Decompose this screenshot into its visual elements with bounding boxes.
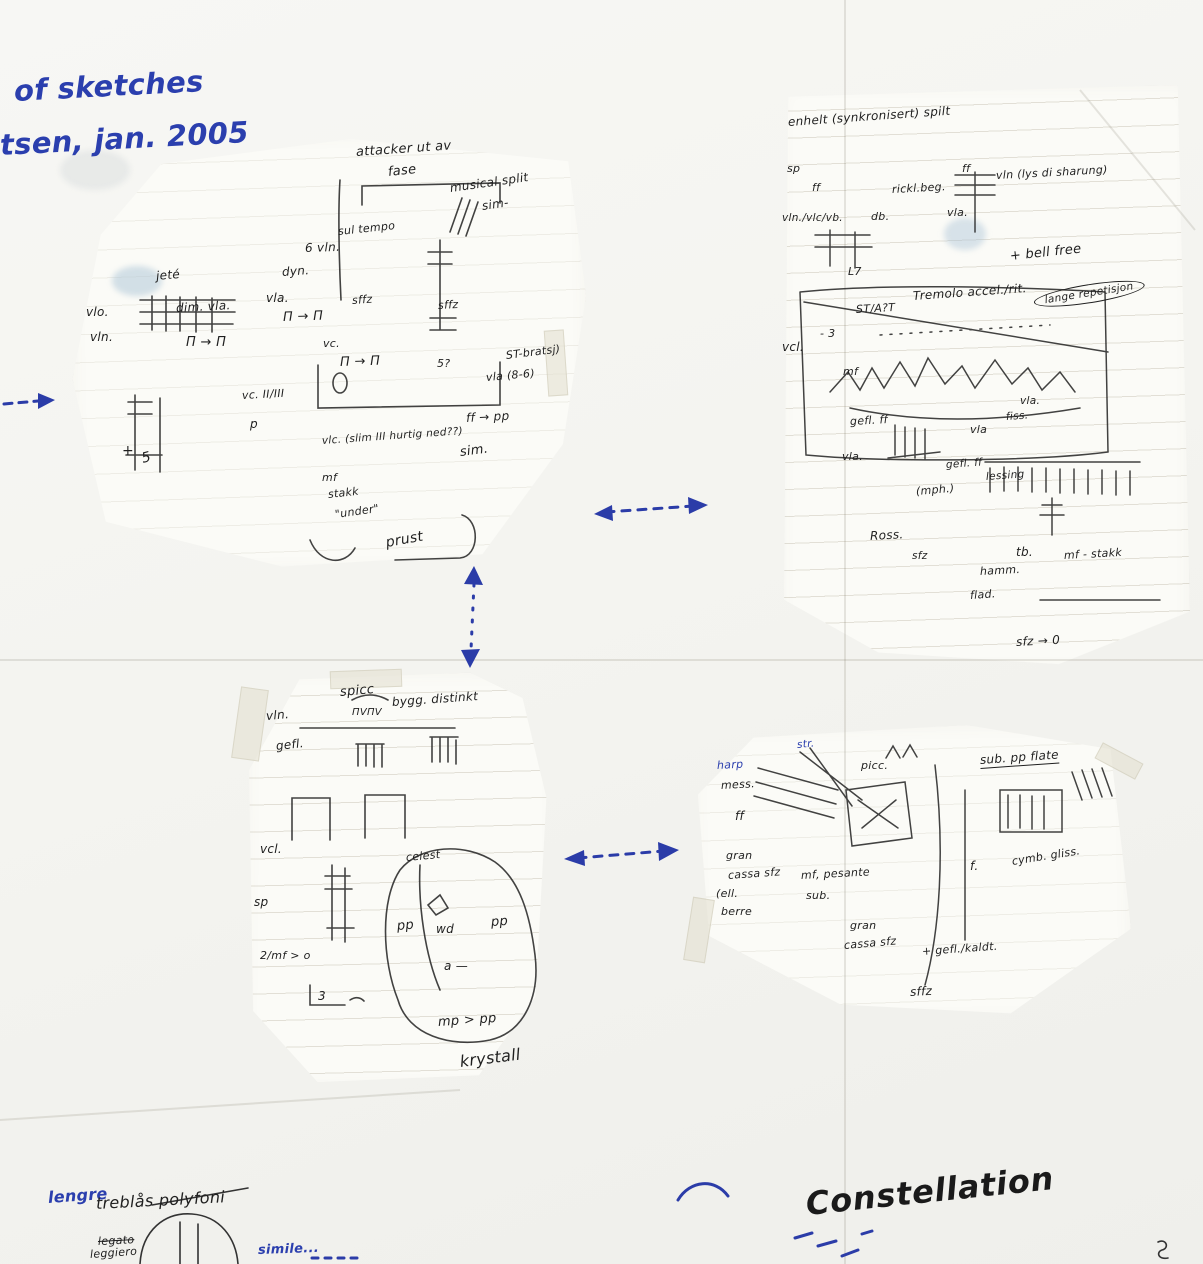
sketch-label: spicc [339, 683, 374, 700]
sketch-label: vc. [323, 338, 340, 350]
sketch-label: ff [812, 182, 820, 194]
sketch-label: 3 [318, 990, 326, 1003]
sketch-label: celest [405, 849, 440, 864]
sketch-label: sffz [910, 985, 933, 999]
sketch-label: (ell. [716, 888, 738, 900]
sketch-label: vcl. [782, 341, 804, 354]
sketch-label: sfz [912, 551, 928, 562]
sketch-label: sub. pp flate [979, 749, 1059, 769]
sketch-label: gefl. ff [946, 457, 983, 471]
sketch-label: vlo. [86, 306, 109, 319]
sketch-label: cassa sfz [728, 866, 781, 881]
sketch-label: a — [444, 960, 468, 973]
sketch-label: + gefl./kaldt. [922, 941, 998, 958]
sketch-label: vla. [1020, 396, 1040, 407]
sketch-label: ΠVΠV [352, 708, 382, 719]
sketch-label: Π → Π [186, 336, 226, 350]
sketch-label: berre [721, 906, 752, 918]
sketch-label: pp [396, 919, 414, 934]
sketch-label: vcl. [260, 843, 282, 856]
sketch-label: ff → pp [466, 410, 510, 425]
scanned-sketch-page: of sketchestsen, jan. 2005attacker ut av… [0, 0, 1203, 1264]
sketch-label: cassa sfz [843, 935, 896, 951]
sketch-label: str. [797, 738, 815, 750]
sketch-label: sim- [481, 196, 509, 212]
sketch-label: mf - stakk [1064, 547, 1123, 562]
sketch-label: sfz → 0 [1016, 634, 1061, 649]
sketch-label: vln./vlc/vb. [782, 213, 843, 224]
sketch-label: gefl. ff [850, 414, 888, 428]
note-date: tsen, jan. 2005 [0, 117, 250, 160]
sketch-label: hamm. [980, 564, 1021, 578]
sketch-label: vla. [947, 207, 968, 219]
note-of-sketches: of sketches [13, 66, 204, 106]
sketch-label: harp [717, 759, 744, 772]
sketch-label: vla [970, 424, 987, 436]
sketch-label: Π → Π [340, 355, 381, 370]
sketch-label: vla (8-6) [485, 368, 535, 384]
sketch-label: mf [322, 472, 337, 484]
sketch-label: sp [787, 163, 800, 175]
sketch-label: attacker ut av [356, 139, 452, 159]
sketch-label: gran [850, 920, 876, 932]
sketch-label: rickl.beg. [892, 181, 946, 195]
sketch-label: dyn. [282, 264, 310, 278]
sketch-label: (mph.) [915, 483, 954, 498]
sketch-label: sffz [438, 299, 459, 312]
sketch-label: Tremolo accel./rit. [913, 282, 1027, 303]
sketch-label: krystall [459, 1047, 522, 1071]
sketch-label: vc. II/III [242, 388, 285, 402]
sketch-label: ff [962, 163, 970, 175]
sketch-label: sub. [806, 890, 830, 902]
sketch-label: dim. vla. [176, 299, 231, 314]
sketch-label: lessing [986, 469, 1025, 483]
sketch-label: vln. [90, 331, 113, 344]
sketch-label: 6 vln. [305, 241, 341, 255]
sketch-label: vln (lys di sharung) [996, 164, 1108, 181]
sketch-label: prust [385, 530, 425, 551]
sketch-label: db. [871, 211, 889, 223]
sketch-label: vln. [265, 708, 289, 723]
sketch-label: Ross. [870, 528, 904, 542]
sketch-label: sim. [459, 443, 489, 460]
sketch-label: flad. [970, 588, 996, 601]
sketch-label: mess. [721, 778, 756, 791]
sketch-label: fiss. [1006, 410, 1029, 423]
sketch-label: cymb. gliss. [1011, 845, 1081, 867]
sketch-label: ST-bratsj) [505, 343, 561, 361]
sketch-label: + bell free [1009, 243, 1082, 264]
handwriting-layer: of sketchestsen, jan. 2005attacker ut av… [0, 0, 1203, 1264]
sketch-label: + [122, 444, 134, 459]
sketch-label: gran [726, 850, 752, 862]
sketch-label: vla. [266, 292, 289, 305]
sketch-label: pp [491, 915, 509, 930]
note-simile: simile... [258, 1242, 319, 1258]
sketch-label: treblås polyfoni [96, 1189, 226, 1213]
sketch-label: mp > pp [438, 1012, 497, 1030]
sketch-label: Π → Π [283, 310, 324, 325]
sketch-label: mf, pesante [801, 866, 870, 881]
sketch-label: jeté [155, 268, 180, 283]
sketch-label: leggiero [90, 1246, 138, 1261]
sketch-label: sul tempo [337, 220, 395, 237]
sketch-label: mf [843, 366, 858, 378]
sketch-label: stakk [327, 486, 359, 501]
sketch-label: sp [254, 896, 268, 909]
sketch-label: 5? [437, 358, 450, 370]
sketch-label: tb. [1016, 546, 1033, 559]
title-constellation: Constellation [804, 1162, 1055, 1221]
sketch-label: 5 [140, 450, 152, 466]
sketch-label: wd [436, 923, 454, 936]
sketch-label: vlc. (slim III hurtig ned??) [322, 426, 464, 447]
sketch-label: enhelt (synkronisert) spilt [788, 105, 951, 129]
sketch-label: sffz [352, 294, 373, 307]
sketch-label: picc. [861, 760, 888, 772]
sketch-label: lange repetisjon [1033, 276, 1146, 312]
sketch-label: bygg. distinkt [392, 690, 479, 709]
sketch-label: "under" [334, 503, 380, 521]
sketch-label: fase [387, 163, 417, 180]
sketch-label: - 3 [820, 328, 835, 340]
sketch-label: musical split [449, 171, 529, 194]
sketch-label: ff [735, 810, 744, 823]
sketch-label: vla. [842, 451, 863, 463]
sketch-label: L7 [848, 266, 862, 278]
sketch-label: p [250, 418, 258, 431]
sketch-label: f. [970, 860, 978, 873]
sketch-label: 2/mf > o [260, 950, 311, 962]
sketch-label: ST/A?T [856, 302, 896, 316]
sketch-label: gefl. [275, 737, 304, 752]
